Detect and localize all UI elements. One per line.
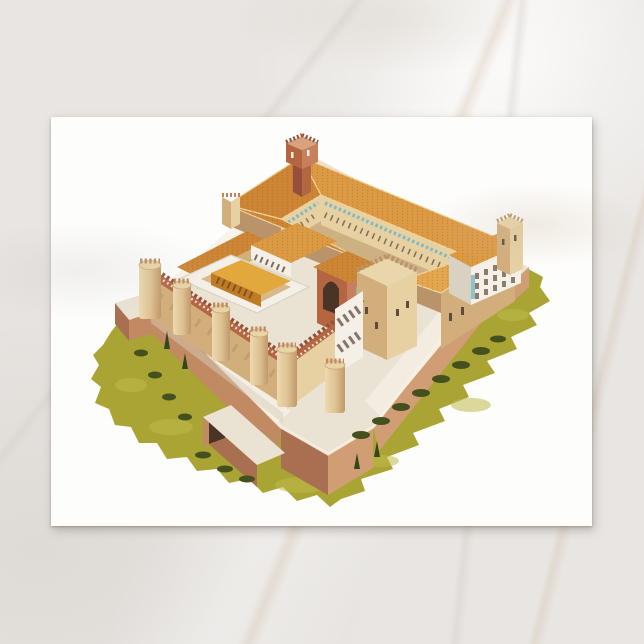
east-corner-tower	[497, 215, 523, 275]
round-tower	[173, 281, 191, 335]
round-tower	[325, 361, 345, 413]
residence-teal-band	[471, 275, 475, 299]
marble-surface	[0, 0, 644, 644]
round-tower	[139, 261, 161, 320]
castle-illustration	[51, 117, 592, 526]
keep-window	[365, 307, 368, 314]
round-tower	[250, 329, 268, 385]
round-tower	[212, 305, 230, 361]
keep-tower	[357, 256, 417, 360]
postcard	[51, 117, 592, 526]
west-end-tower	[222, 195, 240, 229]
round-tower-corner	[277, 345, 297, 407]
campanile-window	[291, 152, 294, 158]
